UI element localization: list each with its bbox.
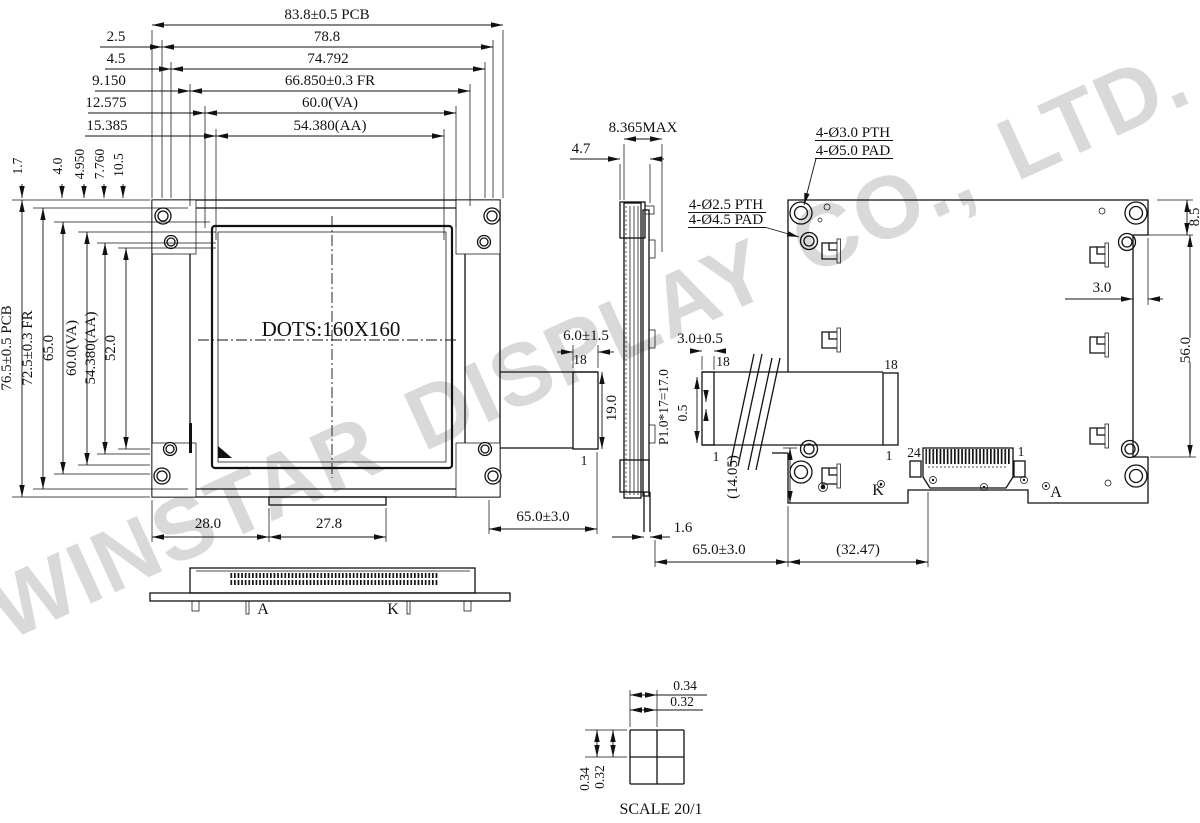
dim-fpc-drop: (14.05) <box>725 455 741 499</box>
connector-pin24-label: 24 <box>907 445 921 460</box>
engineering-drawing-page: WINSTAR DISPLAY CO., LTD. <box>0 0 1200 823</box>
side-pcb-layer <box>643 210 649 496</box>
dim-65-0: 65.0 <box>41 335 57 361</box>
front-fpc-tail: 6.0±1.5 18 1 19.0 65.0±3.0 <box>489 328 620 534</box>
dim-pin-width: 0.5 <box>675 404 690 421</box>
dim-pcb-width: 83.8±0.5 PCB <box>284 7 369 23</box>
dim-4-0: 4.0 <box>50 157 65 174</box>
callout-big-hole-pad: 4-Ø5.0 PAD <box>816 143 891 159</box>
dim-78-8: 78.8 <box>314 29 340 45</box>
front-corner-offset-dimensions: 1.7 4.0 4.950 7.760 10.5 <box>10 149 150 200</box>
bezel-clip <box>1090 424 1109 448</box>
dim-back-fpc-length: 65.0±3.0 <box>692 542 745 558</box>
dim-back-fpc-width: 3.0±0.5 <box>677 331 723 347</box>
dim-10-5: 10.5 <box>111 153 126 177</box>
dim-dot-width: 0.32 <box>670 694 694 709</box>
dim-va-height: 60.0(VA) <box>64 320 80 376</box>
dim-fpc-height: 19.0 <box>604 395 620 421</box>
front-fpc-exit-tab <box>269 497 386 505</box>
callout-small-hole-pth: 4-Ø2.5 PTH <box>689 197 763 213</box>
dots-resolution-label: DOTS:160X160 <box>262 317 401 341</box>
bottom-view: A K <box>150 568 510 618</box>
dim-dot-pitch-h: 0.34 <box>673 678 697 693</box>
fpc-pin1-label: 1 <box>581 453 588 468</box>
dim-pcb-height: 76.5±0.5 PCB <box>0 305 15 390</box>
dim-aa-width: 54.380(AA) <box>294 118 367 134</box>
front-metal-frame <box>190 208 465 489</box>
bottom-cathode-label: K <box>387 601 399 618</box>
dim-frame-width: 66.850±0.3 FR <box>285 73 375 89</box>
board-fpc-pin1-label: 1 <box>886 448 893 463</box>
callout-big-hole-pth: 4-Ø3.0 PTH <box>816 125 890 141</box>
connector-pin1-label: 1 <box>1018 444 1025 459</box>
anode-pin <box>246 601 249 614</box>
dim-fpc-width: 6.0±1.5 <box>563 328 609 344</box>
dim-28-0: 28.0 <box>195 516 221 532</box>
pixel-origin-marker <box>218 446 232 458</box>
dim-dot-height: 0.32 <box>592 765 607 789</box>
dim-back-8-5: 8.5 <box>1187 208 1200 227</box>
callout-small-hole-pad: 4-Ø4.5 PAD <box>689 212 764 228</box>
dim-aa-height: 54.380(AA) <box>83 312 99 385</box>
bezel-clip <box>1090 243 1109 267</box>
dim-4-950: 4.950 <box>72 149 87 180</box>
bottom-anode-label: A <box>257 601 269 618</box>
dim-va-width: 60.0(VA) <box>302 95 358 111</box>
dim-fpc-thickness: 1.6 <box>674 520 693 536</box>
bezel-clip <box>1090 333 1109 357</box>
front-mounting-holes <box>154 208 501 484</box>
back-fpc-ribbon <box>702 354 898 470</box>
output-connector-24pin <box>910 448 1025 488</box>
dot-pitch-detail: 0.34 0.32 0.34 0.32 SCALE 20/1 <box>577 678 707 818</box>
fpc-pin18-label: 18 <box>573 352 587 367</box>
dim-back-3-0: 3.0 <box>1093 280 1112 296</box>
dim-7-760: 7.760 <box>92 149 107 180</box>
back-fpc-pin18-label: 18 <box>716 354 730 369</box>
cathode-label: K <box>872 482 884 499</box>
dim-27-8: 27.8 <box>316 516 342 532</box>
lcd-module-dimension-drawing: DOTS:160X160 83.8±0 <box>0 0 1200 823</box>
cathode-pin <box>407 601 410 614</box>
dim-thickness-max: 8.365MAX <box>609 120 678 136</box>
dim-74-792: 74.792 <box>307 51 348 67</box>
board-fpc-pin18-label: 18 <box>884 357 898 372</box>
dim-offset-12-575: 12.575 <box>85 95 126 111</box>
dim-offset-9-150: 9.150 <box>92 73 126 89</box>
dim-thickness: 4.7 <box>572 141 591 157</box>
anode-label: A <box>1050 484 1062 501</box>
dim-pin-pitch: P1.0*17=17.0 <box>656 369 671 445</box>
dim-back-56-0: 56.0 <box>1178 337 1194 363</box>
scale-label: SCALE 20/1 <box>619 801 702 818</box>
back-fpc-pin1-label: 1 <box>713 449 720 464</box>
dim-dot-pitch-v: 0.34 <box>577 767 592 791</box>
bezel-clip <box>822 328 841 352</box>
dim-52-0: 52.0 <box>103 335 119 361</box>
hole-callouts: 4-Ø2.5 PTH 4-Ø4.5 PAD 4-Ø3.0 PTH 4-Ø5.0 … <box>688 125 893 237</box>
front-view: DOTS:160X160 <box>152 200 501 505</box>
dim-fpc-length: 65.0±3.0 <box>516 509 569 525</box>
dim-frame-height: 72.5±0.3 FR <box>20 310 36 385</box>
fpc-stiffener-hatched <box>573 372 598 449</box>
dim-offset-2-5: 2.5 <box>107 29 126 45</box>
front-bottom-dimensions: 28.0 27.8 <box>152 500 386 542</box>
bezel-clip <box>822 464 841 488</box>
front-top-dimensions: 83.8±0.5 PCB 2.5 78.8 4.5 74.792 9.150 6… <box>85 7 503 240</box>
dim-1-7: 1.7 <box>10 157 25 174</box>
bezel-clip <box>822 239 841 263</box>
dim-connector-offset: (32.47) <box>836 542 880 558</box>
back-view: 24 1 K A 18 1 <box>702 200 1148 503</box>
back-view-dimensions: 3.0±0.5 18 1 P1.0*17=17.0 0.5 (14.05) 65… <box>655 200 1200 567</box>
dim-offset-4-5: 4.5 <box>107 51 126 67</box>
dim-offset-15-385: 15.385 <box>86 118 127 134</box>
